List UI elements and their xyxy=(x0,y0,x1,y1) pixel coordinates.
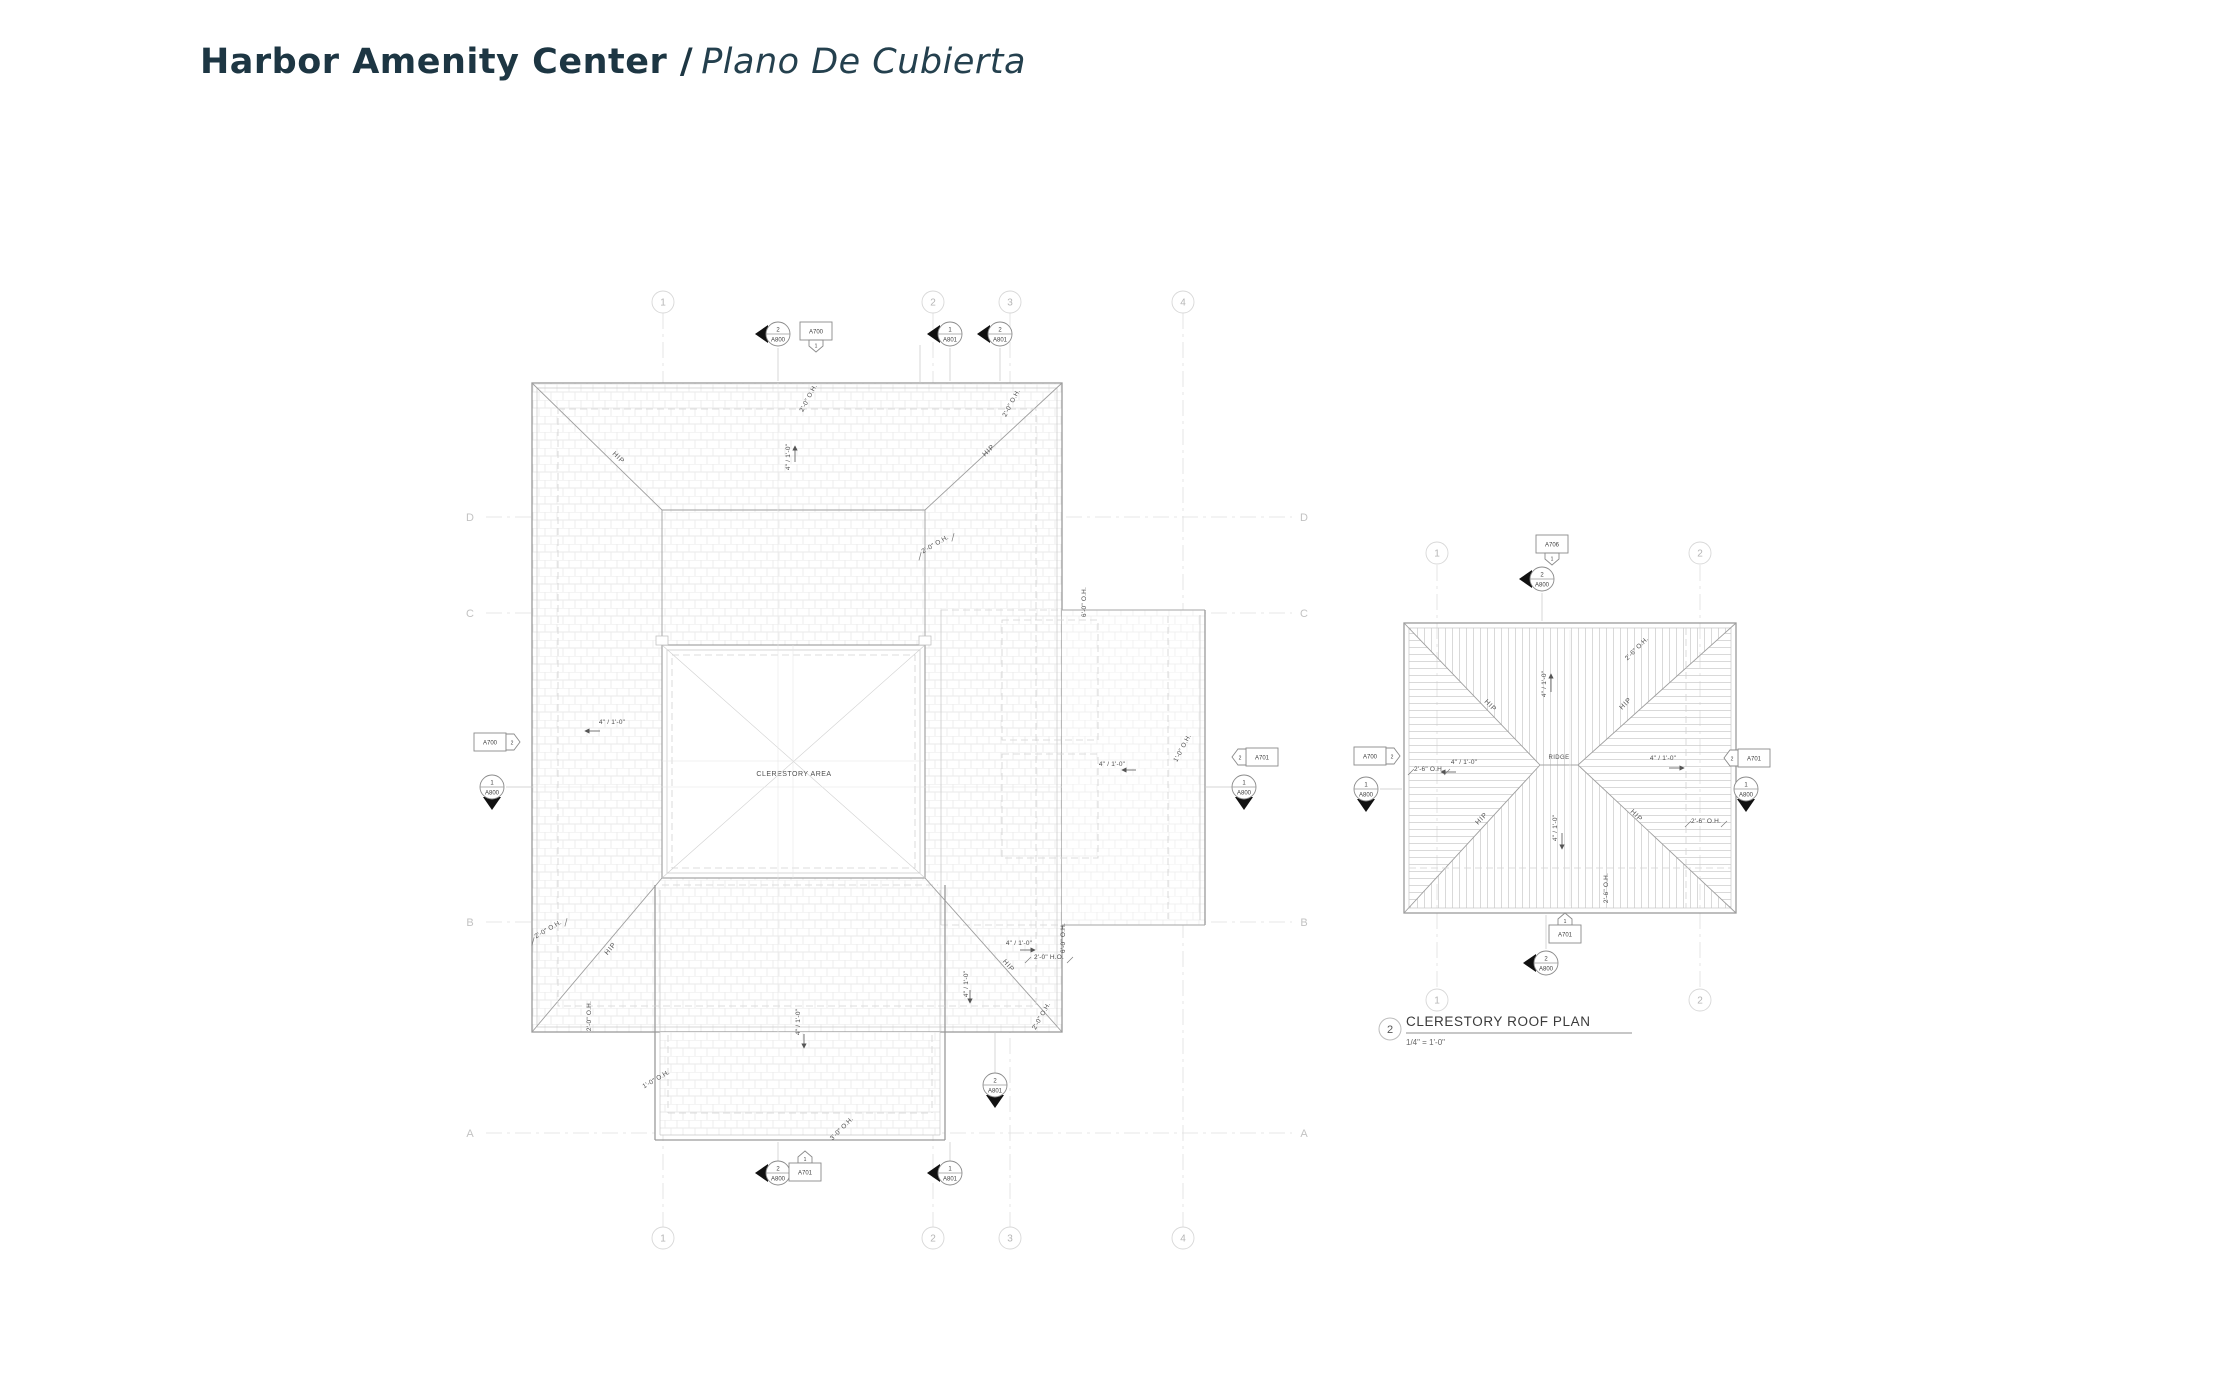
marker-sheet: A800 xyxy=(1739,793,1754,799)
marker-sheet: A801 xyxy=(943,1177,958,1183)
marker-sheet: A801 xyxy=(988,1089,1003,1095)
callout-number: 2 xyxy=(1731,757,1734,763)
callout-sheet: A700 xyxy=(483,741,498,747)
grid-bubble-3: 3 xyxy=(1007,298,1013,309)
grid-bubble-1b: 1 xyxy=(660,1234,666,1245)
marker-sheet: A801 xyxy=(943,338,958,344)
callout-sheet: A706 xyxy=(1545,543,1560,549)
roof-plan: CLERESTORY AREA 1 2 3 4 1 2 3 4 D xyxy=(466,291,1308,1249)
slope-label: 4" / 1'-0" xyxy=(1006,940,1033,947)
marker-sheet: A800 xyxy=(771,1177,786,1183)
clerestory-bubble-2-top: 2 xyxy=(1697,549,1703,560)
callout-A701-2-cler-right: A701 2 xyxy=(1724,749,1770,767)
section-marker-1-A800-left: 1 A800 xyxy=(480,775,504,810)
callout-number: 2 xyxy=(1391,755,1394,761)
callout-A706-1-top: A706 1 xyxy=(1536,535,1568,565)
grid-bubble-3b: 3 xyxy=(1007,1234,1013,1245)
marker-sheet: A800 xyxy=(1539,967,1554,973)
slope-label: 4" / 1'-0" xyxy=(1541,670,1548,697)
slope-label: 4" / 1'-0" xyxy=(1451,759,1478,766)
section-marker-2-A800-cler-top: 2 A800 xyxy=(1519,567,1554,591)
overhang-label: 2'-6" O.H. xyxy=(1414,766,1444,773)
section-marker-1-A801-bottom: 1 A801 xyxy=(927,1161,962,1185)
callout-number: 2 xyxy=(1239,756,1242,762)
callout-number: 1 xyxy=(1551,557,1554,563)
drawing-sheet: Harbor Amenity Center /Plano De Cubierta xyxy=(0,0,2214,1378)
callout-A700-1-top: A700 1 xyxy=(800,322,832,352)
clerestory-bubble-1-bottom: 1 xyxy=(1434,996,1440,1007)
callout-A701-1-cler-bottom: 1 A701 xyxy=(1549,913,1581,943)
section-marker-2-A800-bottom: 2 A800 xyxy=(755,1161,790,1185)
callout-A700-2-left: A700 2 xyxy=(474,733,520,751)
section-marker-1-A800-right: 1 A800 xyxy=(1232,775,1256,810)
grid-bubble-4b: 4 xyxy=(1180,1234,1186,1245)
callout-sheet: A701 xyxy=(1747,757,1762,763)
callout-sheet: A700 xyxy=(1363,755,1378,761)
callout-number: 1 xyxy=(1564,919,1567,925)
drawing2-title-block: 2 CLERESTORY ROOF PLAN 1/4" = 1'-0" xyxy=(1379,1014,1632,1047)
clerestory-area-label: CLERESTORY AREA xyxy=(756,771,831,778)
drawing2-number: 2 xyxy=(1387,1024,1393,1036)
ridge-label: RIDGE xyxy=(1548,755,1569,761)
marker-sheet: A800 xyxy=(1359,793,1374,799)
grid-bubbles-top: 1 2 3 4 xyxy=(652,291,1194,313)
overhang-label: 6'-0" O.H. xyxy=(1081,587,1088,617)
grid-row-D-left: D xyxy=(466,512,474,524)
overhang-label: 2'-6" O.H. xyxy=(1691,818,1721,825)
grid-row-B-left: B xyxy=(466,917,473,929)
slope-label: 4" / 1'-0" xyxy=(963,970,970,997)
callout-A701-1-bottom: 1 A701 xyxy=(789,1151,821,1181)
grid-row-B-right: B xyxy=(1300,917,1307,929)
grid-bubble-4: 4 xyxy=(1180,298,1186,309)
callout-A700-2-cler-left: A700 2 xyxy=(1354,747,1400,765)
grid-row-C-right: C xyxy=(1300,608,1308,620)
section-marker-2-A800-top: 2 A800 xyxy=(755,322,790,346)
grid-row-A-right: A xyxy=(1300,1128,1308,1140)
grid-row-C-left: C xyxy=(466,608,474,620)
slope-label: 4" / 1'-0" xyxy=(785,443,792,470)
overhang-label: 2'-6" O.H. xyxy=(1603,873,1610,903)
marker-sheet: A800 xyxy=(1237,791,1252,797)
section-marker-1-A801-top: 1 A801 xyxy=(927,322,962,346)
grid-bubble-1: 1 xyxy=(660,298,666,309)
overhang-label: 2'-0" O.H. xyxy=(586,1001,593,1031)
callout-sheet: A701 xyxy=(1558,933,1573,939)
slope-label: 4" / 1'-0" xyxy=(1099,761,1126,768)
marker-sheet: A800 xyxy=(771,338,786,344)
grid-bubble-2b: 2 xyxy=(930,1234,936,1245)
plan-canvas: CLERESTORY AREA 1 2 3 4 1 2 3 4 D xyxy=(0,0,2214,1378)
clerestory-bubble-2-bottom: 2 xyxy=(1697,996,1703,1007)
callout-A701-2-right: A701 2 xyxy=(1232,748,1278,766)
marker-sheet: A801 xyxy=(993,338,1008,344)
marker-sheet: A800 xyxy=(485,791,500,797)
marker-sheet: A800 xyxy=(1535,583,1550,589)
slope-label: 4" / 1'-0" xyxy=(795,1008,802,1035)
slope-label: 4" / 1'-0" xyxy=(599,719,626,726)
callout-sheet: A701 xyxy=(1255,756,1270,762)
section-marker-2-A801-top: 2 A801 xyxy=(977,322,1012,346)
overhang-label: 6'-0" O.H. xyxy=(1060,923,1067,953)
callout-number: 1 xyxy=(804,1157,807,1163)
section-marker-1-A800-cler-right: 1 A800 xyxy=(1734,777,1758,812)
slope-label: 4" / 1'-0" xyxy=(1650,755,1677,762)
grid-row-A-left: A xyxy=(466,1128,474,1140)
clerestory-roof-plan: 1 2 1 2 A706 1 2 A800 xyxy=(1354,535,1770,1047)
clerestory-bubble-1-top: 1 xyxy=(1434,549,1440,560)
callout-sheet: A701 xyxy=(798,1171,813,1177)
grid-row-D-right: D xyxy=(1300,512,1308,524)
clerestory-area-box: CLERESTORY AREA xyxy=(656,636,931,878)
section-marker-2-A801-wing: 2 A801 xyxy=(983,1073,1007,1108)
section-marker-1-A800-cler-left: 1 A800 xyxy=(1354,777,1378,812)
callout-sheet: A700 xyxy=(809,330,824,336)
section-marker-2-A800-cler-bottom: 2 A800 xyxy=(1523,951,1558,975)
callout-number: 1 xyxy=(815,344,818,350)
grid-bubble-2: 2 xyxy=(930,298,936,309)
slope-label: 4" / 1'-0" xyxy=(1552,814,1559,841)
grid-bubbles-bottom: 1 2 3 4 xyxy=(652,1227,1194,1249)
overhang-label: 2'-0" H.O. xyxy=(1034,954,1064,961)
callout-number: 2 xyxy=(511,741,514,747)
drawing2-title: CLERESTORY ROOF PLAN xyxy=(1406,1014,1591,1029)
drawing2-scale: 1/4" = 1'-0" xyxy=(1406,1038,1445,1047)
